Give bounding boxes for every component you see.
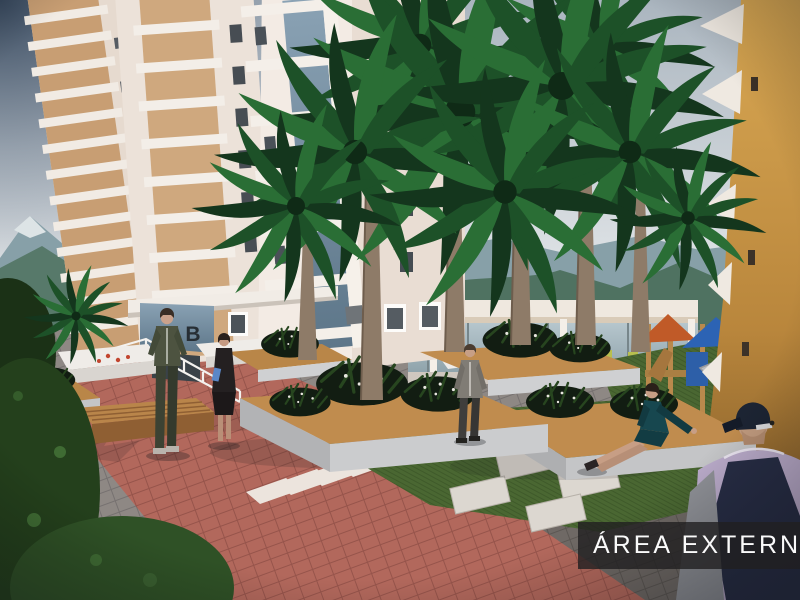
vignette	[0, 0, 800, 600]
exterior-render: B	[0, 0, 800, 600]
area-externa-text: ÁREA EXTERNA	[593, 531, 800, 560]
area-externa-label: ÁREA EXTERNA	[578, 522, 800, 569]
scene-graphic: B	[0, 0, 800, 600]
